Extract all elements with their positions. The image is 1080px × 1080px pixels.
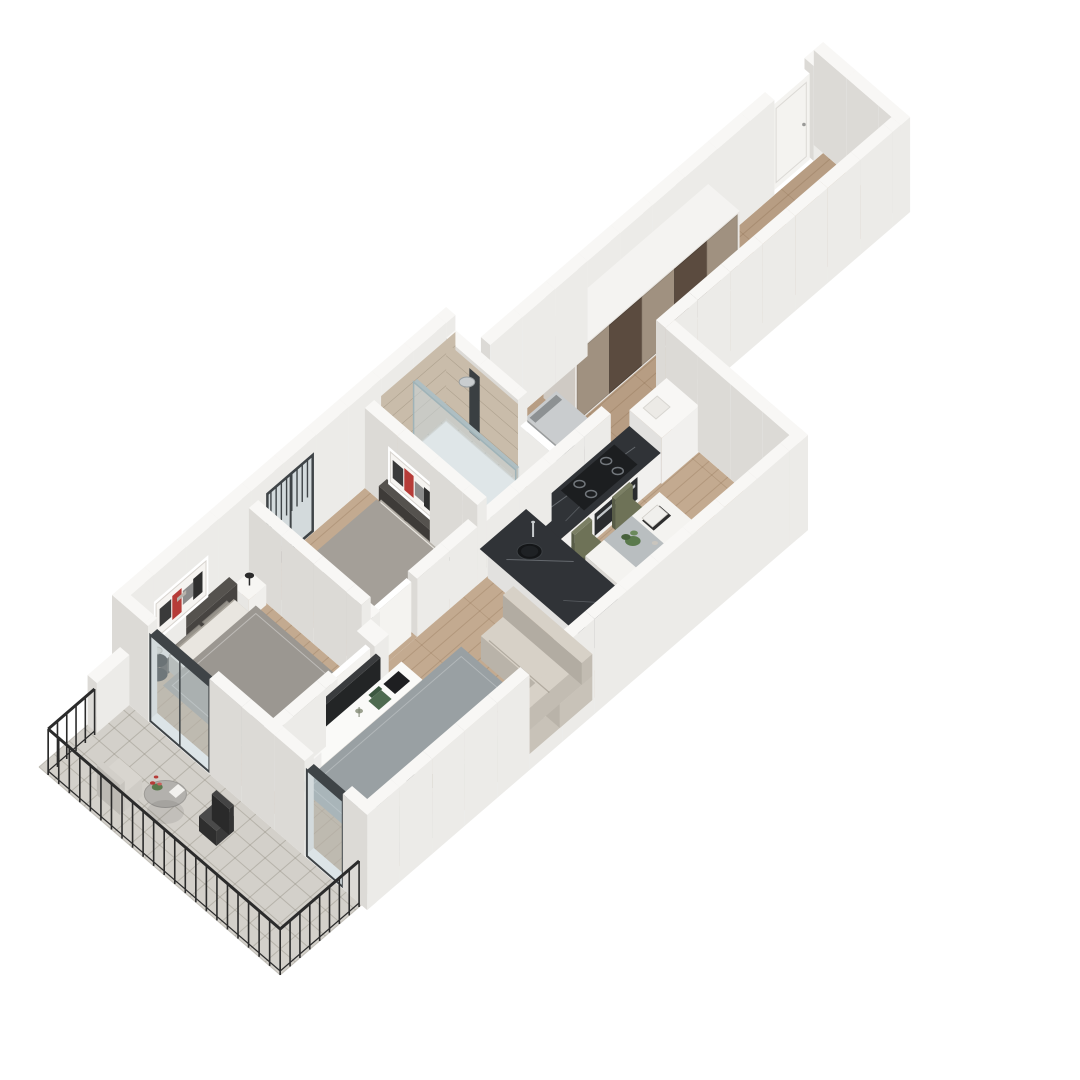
floor-plan-3d-render bbox=[0, 0, 1080, 1080]
floor-plan-svg bbox=[0, 0, 1080, 1080]
